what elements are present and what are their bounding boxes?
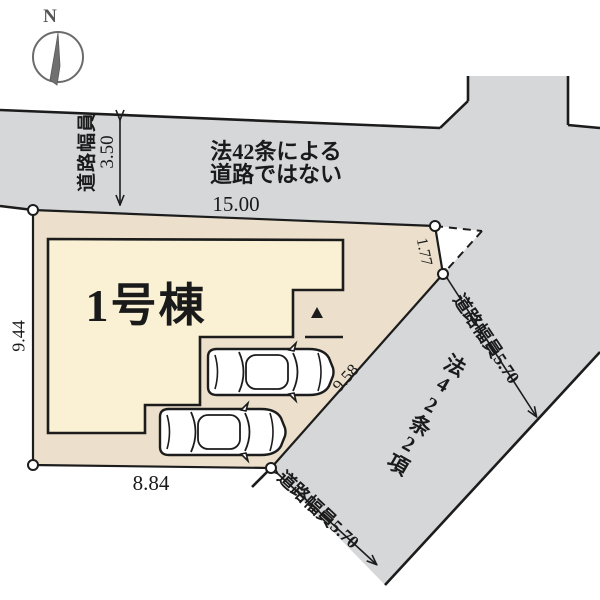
corner-marker <box>28 205 38 215</box>
dim-bottom-8-84: 8.84 <box>133 472 170 494</box>
not-a-road-note-line2: 道路ではない <box>210 163 342 186</box>
not-a-road-note-line1: 法42条による <box>210 140 342 163</box>
road-width-3-50-label: 道路幅員 3.50 <box>78 112 118 192</box>
dim-top-15-00: 15.00 <box>212 193 259 215</box>
site-plan: N 道路幅員 3.50 法42条による 道路ではない 15.00 1.77 道路… <box>0 0 600 600</box>
car-1-topview <box>208 343 334 401</box>
not-a-road-note: 法42条による 道路ではない <box>210 140 342 186</box>
corner-marker <box>28 460 38 470</box>
dim-left-9-44: 9.44 <box>10 320 29 352</box>
road-width-value-text: 3.50 <box>98 112 118 192</box>
compass-icon <box>33 32 83 85</box>
building-label: 1号棟 <box>86 282 207 330</box>
compass-north-label: N <box>43 7 57 27</box>
corner-marker <box>266 463 276 473</box>
car-2-topview <box>160 403 286 461</box>
corner-marker <box>430 221 440 231</box>
road-width-label-text: 道路幅員 <box>78 112 98 192</box>
corner-marker <box>438 269 448 279</box>
